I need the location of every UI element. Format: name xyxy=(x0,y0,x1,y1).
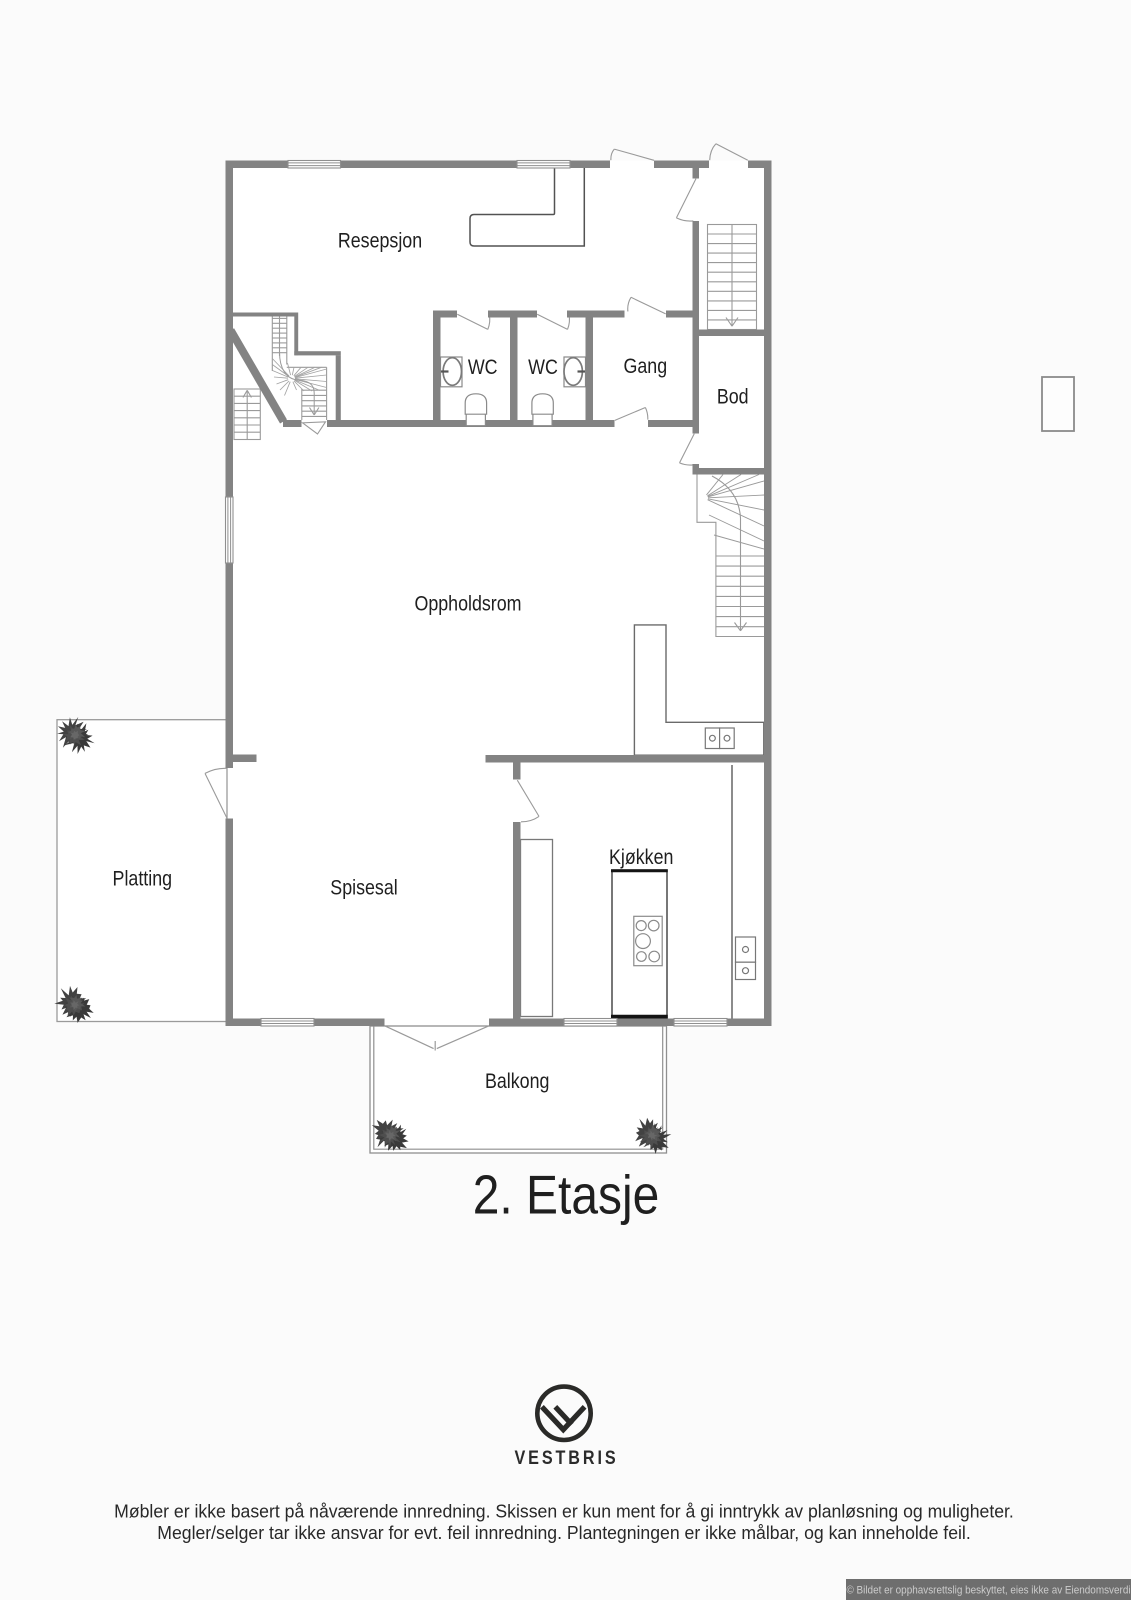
svg-text:Møbler er ikke basert på nåvær: Møbler er ikke basert på nåværende innre… xyxy=(114,1501,1014,1521)
svg-text:WC: WC xyxy=(468,356,498,380)
svg-text:Oppholdsrom: Oppholdsrom xyxy=(414,592,521,616)
svg-text:Balkong: Balkong xyxy=(485,1070,549,1094)
svg-text:Bod: Bod xyxy=(717,385,749,409)
svg-text:© Bildet er opphavsrettslig be: © Bildet er opphavsrettslig beskyttet, e… xyxy=(846,1585,1130,1596)
svg-text:VESTBRIS: VESTBRIS xyxy=(514,1446,618,1468)
svg-text:Kjøkken: Kjøkken xyxy=(609,846,673,870)
svg-text:Megler/selger tar ikke ansvar: Megler/selger tar ikke ansvar for evt. f… xyxy=(157,1523,970,1543)
svg-text:Resepsjon: Resepsjon xyxy=(338,229,422,253)
svg-text:Platting: Platting xyxy=(113,867,172,891)
svg-text:2. Etasje: 2. Etasje xyxy=(473,1165,660,1226)
svg-text:WC: WC xyxy=(528,356,558,380)
svg-text:Gang: Gang xyxy=(623,355,667,379)
svg-text:Spisesal: Spisesal xyxy=(330,876,397,900)
